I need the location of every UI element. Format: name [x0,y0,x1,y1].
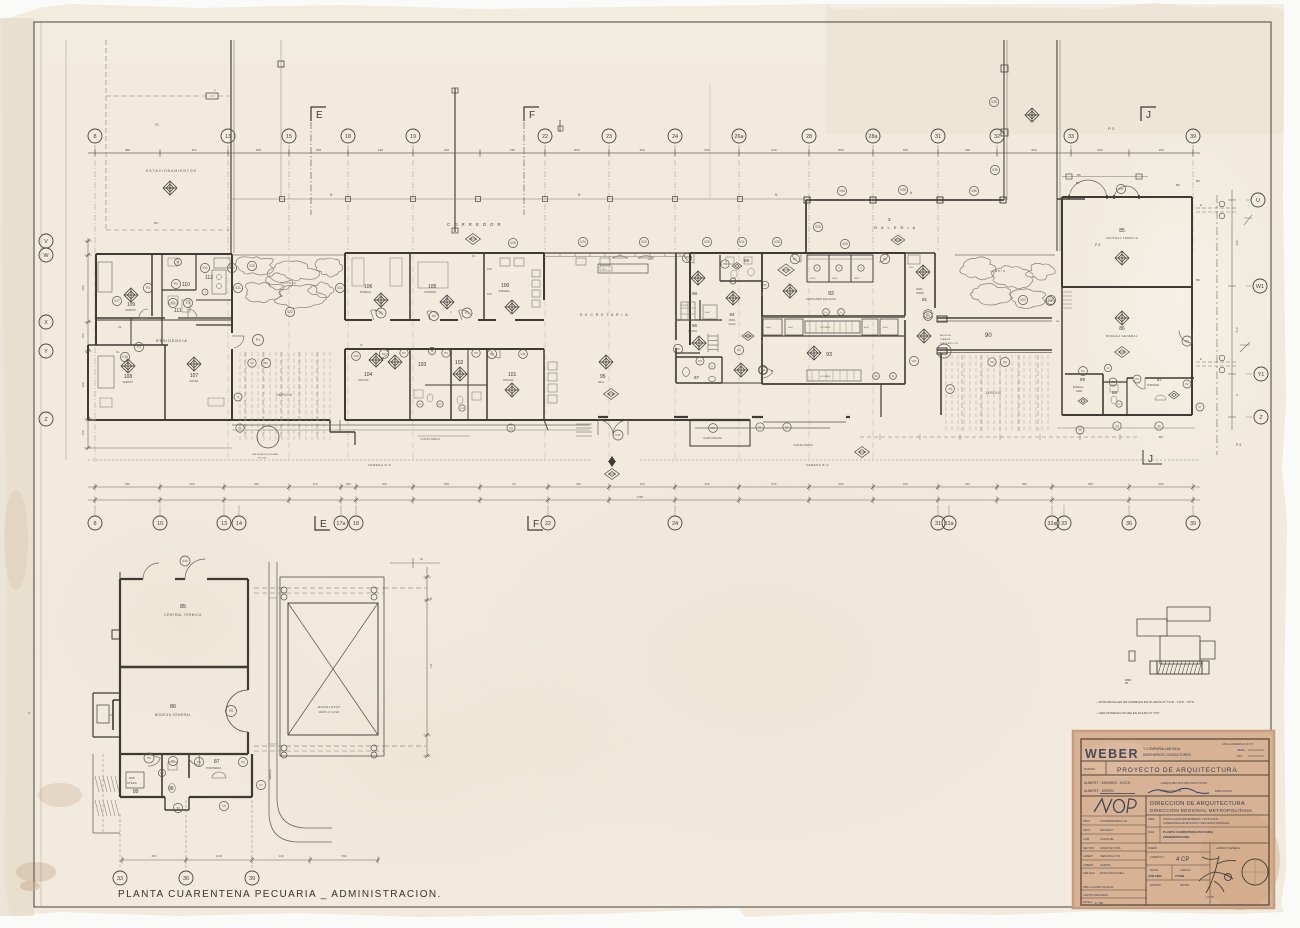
svg-text:STANDER: STANDER [940,338,951,341]
svg-text:JARDIN: JARDIN [276,393,292,397]
svg-text:P5: P5 [229,709,233,713]
svg-text:93.80: 93.80 [744,334,752,338]
svg-text:ARE GEO: ARE GEO [1083,871,1095,875]
svg-text:P1: P1 [793,257,797,261]
svg-text:CL: CL [118,325,122,329]
svg-text:CONTROL: CONTROL [424,290,437,294]
svg-text:S E C R E T A R I A: S E C R E T A R I A [580,313,628,317]
svg-text:590: 590 [342,854,347,858]
svg-text:580: 580 [838,482,843,486]
svg-text:E: E [1200,357,1202,361]
svg-text:VEST: VEST [832,278,838,280]
svg-text:KS: KS [472,255,476,258]
svg-text:DIRECCION REGIONAL METROPOLI: DIRECCION REGIONAL METROPOLITANA [1150,808,1253,813]
svg-text:COM: COM [1083,837,1089,841]
svg-text:V7: V7 [1198,405,1202,409]
svg-text:VEREDA O.S: VEREDA O.S [368,463,391,467]
svg-text:LOCKERS: LOCKERS [680,305,689,307]
svg-text:V18: V18 [122,355,128,359]
svg-text:FECHA: FECHA [1150,869,1159,872]
svg-text:BODEGA: BODEGA [1073,386,1084,389]
svg-text:CARTOG REVISADO: CARTOG REVISADO [1083,893,1108,897]
svg-text:V3: V3 [176,806,180,810]
svg-text:190: 190 [378,148,383,152]
svg-text:G A L E R I A: G A L E R I A [874,225,917,230]
svg-text:640: 640 [444,148,449,152]
svg-text:VEST: VEST [810,278,816,280]
svg-text:ROPA: ROPA [729,319,736,322]
svg-text:140: 140 [279,854,284,858]
svg-text:600: 600 [1031,148,1036,152]
svg-text:85: 85 [1119,228,1125,234]
svg-text:V28: V28 [991,100,997,104]
svg-text:89: 89 [133,789,139,795]
svg-text:JARDINERA: JARDINERA [793,443,813,447]
svg-text:545: 545 [903,148,908,152]
svg-text:ARQUITECTURA: ARQUITECTURA [1100,846,1121,850]
svg-text:93.20: 93.20 [894,238,902,242]
svg-text:A DE LA BARRA 24 OF 57: A DE LA BARRA 24 OF 57 [1222,742,1253,746]
svg-text:J: J [1148,454,1153,465]
svg-text:V27: V27 [912,359,917,363]
svg-text:PC: PC [155,123,160,127]
svg-text:P2: P2 [676,347,680,351]
svg-text:88: 88 [1112,390,1117,395]
svg-text:P3: P3 [171,301,175,305]
svg-text:31: 31 [935,521,941,527]
svg-text:JARDIN: JARDIN [280,281,297,285]
svg-text:BañO: BañO [883,326,889,329]
svg-text:• ARQUITECTOS PROYECTISTAS: • ARQUITECTOS PROYECTISTAS [1160,781,1207,785]
svg-text:17a: 17a [336,521,346,527]
svg-text:32: 32 [994,134,1000,140]
svg-text:600: 600 [256,148,261,152]
svg-text:ARCHIVO: ARCHIVO [1150,884,1161,887]
svg-text:PROV: PROV [1083,828,1091,832]
svg-text:P3: P3 [402,351,406,355]
svg-text:190: 190 [965,148,970,152]
svg-text:V21: V21 [235,286,241,290]
svg-text:BODEGA GENERAL: BODEGA GENERAL [155,713,192,717]
svg-text:510: 510 [1235,327,1239,332]
svg-text:JARDIN: JARDIN [990,269,1006,273]
svg-text:V11: V11 [229,266,235,270]
svg-text:39: 39 [249,876,255,882]
svg-text:P2: P2 [926,314,930,318]
svg-text:V29: V29 [842,242,848,246]
svg-text:18: 18 [345,134,351,140]
svg-text:VER PLANO 1770: VER PLANO 1770 [940,342,959,345]
svg-text:26a: 26a [734,134,744,140]
svg-text:HALL: HALL [598,380,605,384]
svg-text:ROPA: ROPA [916,288,923,291]
svg-text:INGENIEROS CONSULTORES: INGENIEROS CONSULTORES [1143,753,1191,757]
svg-text:V2: V2 [250,361,254,365]
svg-text:P10: P10 [183,559,188,563]
svg-text:110: 110 [182,282,190,288]
svg-text:390: 390 [81,382,85,387]
svg-text:R2: R2 [1003,360,1007,364]
svg-text:550: 550 [838,148,843,152]
svg-text:BODEGA: BODEGA [360,290,371,294]
svg-text:E: E [316,110,323,121]
svg-text:545: 545 [704,148,709,152]
svg-text:102: 102 [455,360,464,366]
svg-text:P3: P3 [1111,380,1115,384]
svg-text:13: 13 [221,521,227,527]
svg-text:P2: P2 [1081,369,1085,373]
svg-text:99: 99 [744,258,750,263]
svg-text:GRAL: GRAL [1076,390,1083,393]
svg-text:CENTRAL TERMICA: CENTRAL TERMICA [1106,236,1138,240]
svg-text:4 CP: 4 CP [1176,857,1189,863]
svg-text:97: 97 [694,375,700,380]
svg-text:Y1: Y1 [1258,372,1265,378]
svg-text:24: 24 [672,521,678,527]
svg-text:550: 550 [1088,482,1093,486]
svg-text:P3: P3 [137,345,141,349]
svg-text:28a: 28a [868,134,878,140]
svg-text:93.80: 93.80 [1118,350,1126,354]
svg-text:1000: 1000 [216,854,223,858]
svg-text:PLAN: PLAN [1148,831,1155,834]
svg-text:P6: P6 [432,314,436,318]
svg-text:—POR DETALLES DE MUEBLES EN PL: —POR DETALLES DE MUEBLES EN PLANOS Nº 71… [1096,700,1194,704]
svg-text:V22: V22 [1020,298,1026,302]
svg-text:RHU: RHU [909,267,914,269]
svg-text:B5: B5 [1076,181,1080,185]
svg-text:VEREDA: VEREDA [268,769,272,780]
svg-text:91: 91 [922,297,928,302]
svg-text:93.30: 93.30 [858,450,866,454]
svg-text:90: 90 [985,333,992,339]
svg-text:V20: V20 [815,225,821,229]
svg-text:87: 87 [1157,377,1162,382]
svg-text:V34: V34 [839,189,845,193]
svg-text:100: 100 [501,283,510,289]
svg-text:V: V [44,239,48,245]
svg-text:190: 190 [639,482,644,486]
svg-text:JARDINERA: JARDINERA [420,437,440,441]
svg-text:V5: V5 [1078,428,1082,432]
svg-text:36: 36 [183,876,189,882]
svg-text:BO: BO [154,221,159,225]
svg-text:PLANTA CUARENTENA PECUARIA: PLANTA CUARENTENA PECUARIA [1163,830,1214,834]
svg-text:22: 22 [542,134,548,140]
svg-text:DIRECCION DE ARQUITECTURA: DIRECCION DE ARQUITECTURA [1150,801,1245,807]
svg-text:P3: P3 [171,759,175,763]
svg-text:SANTIAGO: SANTIAGO [1100,828,1113,832]
svg-text:PORTERIA: PORTERIA [1147,384,1160,387]
svg-text:2780: 2780 [637,495,644,499]
svg-text:580: 580 [444,482,449,486]
svg-text:V22: V22 [287,310,293,314]
svg-text:130: 130 [429,663,433,668]
svg-text:89: 89 [1080,377,1085,382]
svg-text:VESTUARIO ESCLUSA: VESTUARIO ESCLUSA [806,297,836,301]
svg-text:P3: P3 [474,351,478,355]
svg-text:V11: V11 [202,266,208,270]
svg-text:ALBERT: ALBERT [1083,854,1093,858]
svg-text:BañO: BañO [864,326,870,329]
svg-text:P3: P3 [197,760,201,764]
svg-text:V7: V7 [259,783,263,787]
svg-text:UTILES: UTILES [127,781,137,785]
svg-text:39: 39 [1190,134,1196,140]
svg-text:FM: FM [1056,321,1059,323]
svg-text:V6: V6 [1157,424,1161,428]
svg-text:V21: V21 [337,286,343,290]
svg-text:550: 550 [1022,482,1027,486]
svg-text:V25: V25 [704,240,710,244]
svg-text:BañO: BañO [766,326,772,329]
svg-text:V5: V5 [222,804,226,808]
svg-text:860: 860 [125,148,130,152]
svg-text:860: 860 [574,148,579,152]
svg-text:ANTES DE: ANTES DE [940,334,951,337]
svg-text:ESPERA: ESPERA [499,289,510,293]
svg-text:VEST: VEST [854,278,860,280]
svg-text:96: 96 [692,323,698,328]
svg-text:Y1: Y1 [236,395,240,399]
svg-text:MC: MC [1117,404,1121,406]
svg-text:P2: P2 [737,348,741,352]
svg-text:VEREDA B.C: VEREDA B.C [806,463,829,467]
svg-text:W1: W1 [1256,284,1264,290]
svg-text:600: 600 [1097,148,1102,152]
svg-text:36: 36 [1126,521,1132,527]
svg-text:V1: V1 [238,426,242,430]
svg-text:300: 300 [704,482,709,486]
svg-text:JARDIN: JARDIN [985,391,1001,395]
svg-text:LIMPIA: LIMPIA [916,292,924,295]
svg-text:F: F [529,110,535,121]
svg-text:WEBER: WEBER [1085,747,1139,761]
svg-text:BOD: BOD [129,776,135,780]
svg-text:P1: P1 [465,311,469,315]
svg-text:V17: V17 [114,299,120,303]
svg-text:V20: V20 [249,264,255,268]
svg-text:FAX: FAX [1237,754,1242,758]
svg-text:P3: P3 [186,301,190,305]
svg-text:31: 31 [935,134,941,140]
svg-text:BODEGA GENERAL: BODEGA GENERAL [1106,334,1138,338]
svg-text:10: 10 [157,521,163,527]
svg-text:PERU: PERU [1237,748,1245,752]
svg-text:107: 107 [190,373,199,379]
svg-text:PROYECTO DE ARQUITECTURA: PROYECTO DE ARQUITECTURA [1117,767,1238,774]
svg-text:OFICINA: OFICINA [358,378,369,382]
svg-text:112: 112 [205,275,213,281]
svg-text:ESTACIONAMIENTOS: ESTACIONAMIENTOS [146,169,197,173]
svg-text:111: 111 [174,308,182,314]
svg-text:SECTOR: SECTOR [1083,846,1094,850]
svg-text:85: 85 [180,604,186,610]
svg-text:94: 94 [729,312,735,317]
svg-text:JUN 1983: JUN 1983 [1148,874,1162,878]
svg-text:860: 860 [346,482,351,486]
svg-text:P 3: P 3 [1095,243,1100,247]
svg-text:32a: 32a [1047,521,1057,527]
svg-text:LAMINAS: LAMINAS [1180,869,1191,872]
svg-text:P14: P14 [616,433,621,437]
svg-text:CUACNTEL: CUACNTEL [1100,837,1115,841]
svg-text:490: 490 [1235,240,1239,245]
svg-text:18: 18 [353,521,359,527]
svg-text:190: 190 [1158,148,1163,152]
svg-text:109: 109 [127,302,136,308]
svg-text:640: 640 [965,482,970,486]
svg-text:103: 103 [418,362,427,368]
svg-text:W: W [43,253,49,259]
svg-text:33: 33 [1068,134,1074,140]
svg-text:B: B [375,309,377,313]
svg-text:V2: V2 [990,360,994,364]
svg-text:P3: P3 [1185,382,1189,386]
svg-text:CD INFRAESTRUC AG: CD INFRAESTRUC AG [1100,819,1127,823]
svg-text:1 : 50: 1 : 50 [1095,901,1103,905]
svg-text:101: 101 [508,372,517,378]
svg-text:V5: V5 [948,387,952,391]
svg-text:93.05: 93.05 [608,472,616,476]
svg-text:V24: V24 [641,240,647,244]
svg-text:V36: V36 [971,189,977,193]
svg-text:DORMIT.: DORMIT. [126,308,137,312]
svg-text:545: 545 [316,148,321,152]
svg-text:Y: Y [44,349,48,355]
svg-text:640: 640 [771,148,776,152]
svg-text:106: 106 [364,284,373,290]
svg-text:PLANTA CUARENTENA PECUARIA _: PLANTA CUARENTENA PECUARIA _ ADMINISTRAC… [118,889,442,900]
svg-text:640: 640 [254,482,259,486]
svg-text:108: 108 [124,374,133,380]
svg-text:AUBERT: AUBERT [1083,863,1094,867]
svg-text:E: E [320,519,327,530]
svg-text:ESTAR: ESTAR [190,379,199,383]
svg-text:JOCKERS: JOCKERS [820,327,831,329]
svg-text:P9: P9 [1185,339,1189,343]
svg-text:300: 300 [639,148,644,152]
svg-text:Nº 73.05: Nº 73.05 [258,457,267,460]
svg-text:P 3: P 3 [1108,126,1115,131]
svg-text:19: 19 [410,134,416,140]
svg-text:33: 33 [1061,521,1067,527]
svg-text:REVISO: REVISO [1180,884,1189,887]
svg-text:Y COMPAÑIA LIMITADA: Y COMPAÑIA LIMITADA [1143,746,1181,751]
svg-text:BañO: BañO [705,311,711,314]
svg-text:RHS: RHS [487,268,492,271]
svg-text:105: 105 [428,284,437,290]
svg-text:V28: V28 [774,240,780,244]
svg-text:8: 8 [93,134,96,140]
svg-text:87: 87 [214,759,220,765]
svg-text:VISITAS: VISITAS [688,330,697,333]
svg-text:PROY: PROY [1083,819,1091,823]
svg-text:95: 95 [600,374,606,380]
svg-text:VER DETALLE EN PLANO: VER DETALLE EN PLANO [252,453,279,456]
svg-text:98: 98 [692,291,698,296]
svg-text:770/84: 770/84 [1175,874,1185,878]
svg-text:300: 300 [189,482,194,486]
svg-text:39: 39 [1190,521,1196,527]
svg-text:U: U [1256,198,1260,204]
svg-text:8: 8 [93,521,96,527]
svg-text:V35: V35 [992,168,998,172]
svg-text:P2: P2 [174,282,178,286]
svg-text:DIBUJANTE: DIBUJANTE [1215,789,1232,793]
svg-text:V1: V1 [176,260,180,264]
svg-text:22: 22 [545,521,551,527]
svg-text:CENTRAL TERMICA: CENTRAL TERMICA [164,613,202,617]
svg-text:93: 93 [826,352,832,358]
svg-text:TK: TK [430,350,433,353]
svg-text:CL: CL [116,350,120,354]
svg-text:V3: V3 [1115,424,1119,428]
svg-text:545: 545 [771,482,776,486]
svg-text:V29: V29 [354,354,359,358]
svg-text:P3: P3 [146,286,150,290]
svg-text:P3: P3 [1135,377,1139,381]
svg-text:NODOLUVIO: NODOLUVIO [318,705,341,709]
svg-text:86: 86 [1119,326,1125,332]
svg-text:88.75: 88.75 [469,237,477,241]
svg-text:V26: V26 [510,241,516,245]
svg-text:28: 28 [806,134,812,140]
svg-text:86: 86 [170,704,176,710]
svg-text:DORMIT.: DORMIT. [123,380,134,384]
svg-text:17.65: 17.65 [1206,895,1214,899]
svg-text:VERGARA LYON: VERGARA LYON [1100,854,1120,858]
svg-text:CARPETA Nº: CARPETA Nº [1150,855,1164,859]
svg-text:AUBERT - SIREIN: AUBERT - SIREIN [1084,789,1114,793]
svg-text:93.80: 93.80 [782,268,790,272]
svg-text:J: J [1146,110,1151,121]
svg-text:P3: P3 [147,756,151,760]
svg-text:800: 800 [152,854,157,858]
svg-text:24: 24 [672,134,678,140]
svg-text:P3: P3 [444,351,448,355]
svg-text:PORTERIA: PORTERIA [206,766,221,770]
svg-text:550: 550 [125,482,130,486]
svg-text:R E S I D E N C I A: R E S I D E N C I A [156,339,187,343]
svg-text:DISEÑO: DISEÑO [1148,847,1157,850]
svg-text:940: 940 [903,482,908,486]
svg-text:GAETTE: GAETTE [1100,863,1111,867]
svg-text:AUBERT - MENDEZ - KOCH: AUBERT - MENDEZ - KOCH [1084,781,1131,785]
svg-text:160: 160 [81,430,85,435]
svg-text:V31: V31 [521,352,526,356]
svg-text:BañO: BañO [788,326,794,329]
svg-text:OFICINA: OFICINA [503,378,514,382]
svg-text:V4: V4 [509,426,513,430]
svg-text:33: 33 [117,876,123,882]
svg-text:—VER NOMENCLATURA EN PLANO Nº: —VER NOMENCLATURA EN PLANO Nº 7CP [1096,711,1159,715]
svg-text:ESCALA: ESCALA [1083,901,1093,904]
svg-text:115: 115 [313,482,318,486]
svg-text:OBRA: OBRA [1148,818,1155,821]
svg-text:C O R R E D O R: C O R R E D O R [447,222,502,227]
svg-text:P3: P3 [723,262,727,266]
svg-text:580: 580 [1158,482,1163,486]
svg-text:VER PL. Nº 12 GR.: VER PL. Nº 12 GR. [319,710,340,714]
svg-text:23: 23 [606,134,612,140]
svg-text:56: 56 [512,482,516,486]
svg-text:P3: P3 [241,760,245,764]
svg-text:ADMINISTRACION: ADMINISTRACION [1163,835,1189,839]
svg-text:300: 300 [576,482,581,486]
svg-text:P2: P2 [761,368,765,372]
svg-text:P2: P2 [382,352,386,356]
